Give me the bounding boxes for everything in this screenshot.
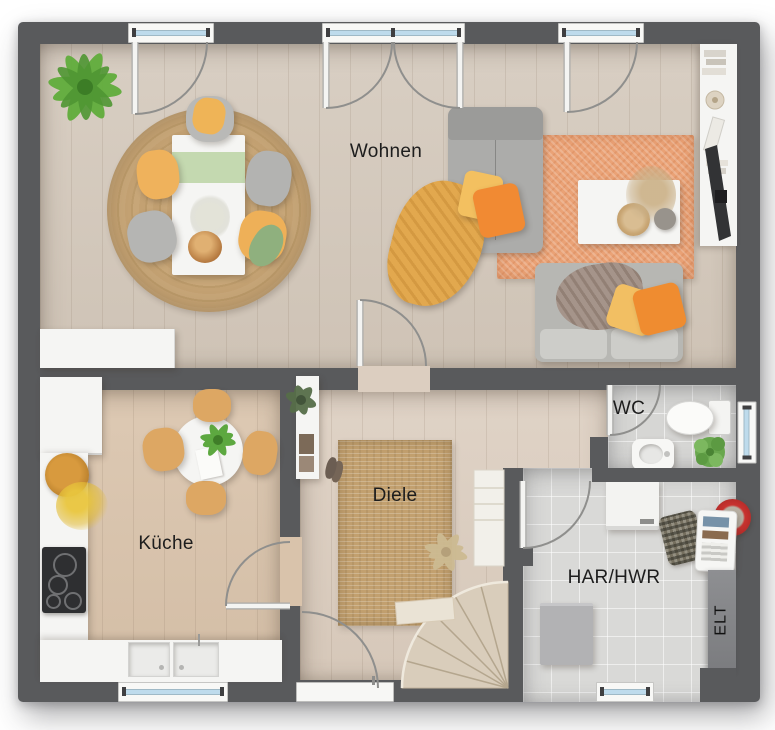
elt-cabinet: ELT (708, 570, 736, 670)
cooktop (42, 547, 86, 613)
window-top-2 (322, 23, 465, 43)
window-glass (744, 409, 750, 457)
kitchen-chair-bottom (186, 481, 226, 515)
seat-cushion (540, 329, 607, 359)
kitchen-counter-bottom (40, 640, 282, 682)
room-label-diele: Diele (373, 485, 418, 507)
washer-panel (640, 519, 654, 524)
floorplan: ELT (18, 22, 760, 702)
sofa-back (448, 107, 543, 140)
ironing-board (694, 509, 737, 573)
burner (64, 592, 82, 610)
tv-board (700, 44, 737, 246)
door-handle (372, 676, 375, 685)
wall-stairs (503, 468, 523, 702)
room-label-kueche: Küche (138, 533, 193, 555)
wall-wc-stub (590, 437, 608, 468)
vase-pot (654, 208, 676, 230)
hall-rug (338, 440, 452, 626)
opening-wohnen-diele (358, 366, 430, 392)
board-item (701, 542, 728, 561)
fridge (40, 377, 102, 455)
wall-niche (700, 668, 736, 702)
sink-knob (179, 665, 184, 670)
table-runner (172, 152, 245, 183)
faucet (664, 451, 670, 457)
floorplan-page: ELT (0, 0, 775, 730)
board-item (703, 516, 729, 527)
books (299, 456, 314, 472)
faucet (198, 634, 200, 646)
washing-machine (606, 481, 659, 530)
burner (46, 594, 61, 609)
window-kitchen (118, 682, 228, 702)
board-item (702, 530, 728, 539)
freezer-box (540, 603, 593, 665)
room-label-wohnen: Wohnen (350, 141, 422, 163)
burner (53, 553, 77, 577)
window-top-3 (558, 23, 644, 43)
books (299, 434, 314, 454)
dining-chair-top (186, 96, 234, 142)
hall-shelf (296, 376, 319, 479)
chair-towel (190, 96, 227, 137)
window-right-wc (738, 402, 757, 464)
wall-knob (505, 548, 533, 566)
sideboard (40, 329, 175, 368)
burner (48, 575, 68, 595)
sink-basin (173, 642, 219, 677)
window-glass (565, 30, 637, 36)
toilet-bowl (666, 401, 714, 435)
window-top-1 (128, 23, 214, 43)
opening-kueche (280, 537, 302, 606)
wall-under-wc (592, 468, 736, 482)
pillow-orange (471, 182, 526, 239)
dining-table (172, 135, 245, 275)
copper-bowl (188, 231, 222, 263)
kitchen-chair-top (193, 389, 231, 422)
yellow-flowers (56, 482, 108, 530)
wc-sink (632, 439, 674, 470)
entrance-door (296, 682, 394, 702)
sink-knob (159, 665, 164, 670)
room-label-har-hwr: HAR/HWR (568, 567, 661, 589)
window-mullion (391, 28, 395, 37)
window-har (596, 682, 654, 702)
window-glass (135, 30, 207, 36)
basin (639, 444, 663, 464)
window-glass (125, 689, 221, 695)
room-label-wc: WC (613, 398, 645, 420)
elt-label: ELT (713, 604, 731, 635)
sink-basin (128, 642, 170, 677)
window-glass (603, 689, 647, 695)
